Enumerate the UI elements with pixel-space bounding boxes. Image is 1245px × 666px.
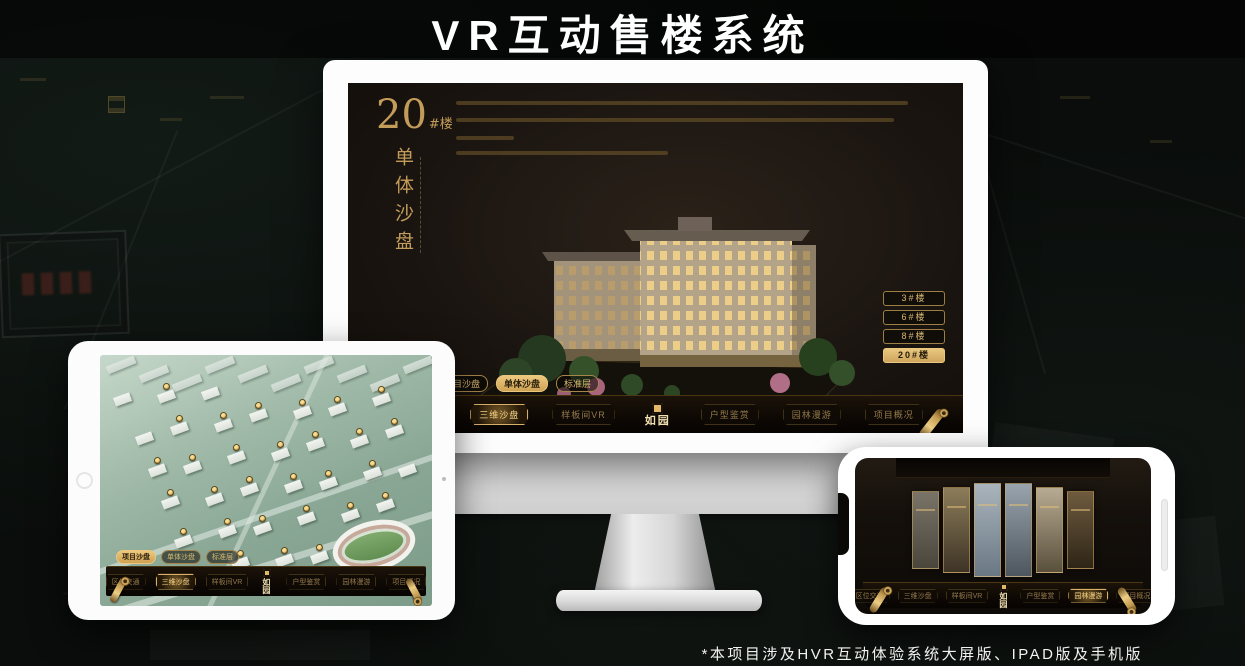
building-badge[interactable] (154, 457, 161, 464)
monitor-stand-base (556, 590, 762, 611)
building-badge[interactable] (281, 547, 288, 554)
map-building (205, 492, 224, 506)
bg-faint-building (150, 630, 370, 660)
bg-gold-dash (1150, 140, 1172, 143)
building-number-suffix: #楼 (429, 117, 453, 132)
building-badge[interactable] (259, 515, 266, 522)
bg-road-line (959, 124, 1245, 237)
map-building (249, 408, 268, 422)
map-building (205, 356, 236, 375)
tablet-screen: 项目沙盘单体沙盘标准层 区位交通三维沙盘样板间VR 如园 户型鉴赏园林漫游项目概… (100, 355, 432, 606)
map-building (376, 498, 395, 512)
map-building (214, 418, 233, 432)
gallery-panel[interactable] (912, 491, 939, 569)
building-badge[interactable] (233, 444, 240, 451)
nav-item[interactable]: 项目概况 (865, 404, 923, 425)
map-building (297, 511, 316, 525)
view-tab[interactable]: 项目沙盘 (116, 550, 156, 564)
page-title: VR互动售楼系统 (0, 2, 1245, 63)
nav-item[interactable]: 样板间VR (206, 574, 249, 590)
building-badge[interactable] (369, 460, 376, 467)
tablet-camera-icon (442, 477, 446, 481)
nav-item[interactable]: 户型鉴赏 (701, 404, 759, 425)
gallery-panel[interactable] (1067, 491, 1094, 569)
brand-seal-icon (263, 569, 271, 577)
bg-plaque-frame (0, 230, 130, 338)
bg-gold-glyph (108, 96, 125, 113)
map-building (148, 463, 167, 477)
building-badge[interactable] (391, 418, 398, 425)
bg-gold-dash (160, 118, 182, 121)
phone-navbar: 区位交通三维沙盘样板间VR 如园 户型鉴赏园林漫游项目概况 (863, 582, 1143, 608)
phone-notch (838, 493, 849, 555)
building-badge[interactable] (167, 489, 174, 496)
intro-text-line (456, 136, 514, 140)
building-number: 20 (376, 92, 427, 138)
nav-item[interactable]: 三维沙盘 (156, 574, 196, 590)
view-tab-group: 项目沙盘单体沙盘标准层 (436, 375, 599, 392)
subtitle-divider (420, 157, 421, 253)
gallery-panel[interactable] (1036, 487, 1063, 573)
floor-button[interactable]: 6#楼 (883, 310, 945, 325)
brand-logo-text: 如园 (645, 416, 671, 427)
gallery-panel[interactable] (974, 483, 1001, 577)
map-building (337, 365, 368, 384)
building-badge[interactable] (334, 396, 341, 403)
nav-item[interactable]: 户型鉴赏 (286, 574, 326, 590)
building-badge[interactable] (382, 492, 389, 499)
nav-item[interactable]: 三维沙盘 (470, 404, 528, 425)
building-badge[interactable] (224, 518, 231, 525)
bg-gold-dash (1060, 96, 1090, 99)
building-badge[interactable] (189, 454, 196, 461)
phone: 区位交通三维沙盘样板间VR 如园 户型鉴赏园林漫游项目概况 (838, 447, 1175, 625)
brand-seal-icon (652, 403, 663, 414)
nav-item[interactable]: 园林漫游 (336, 574, 376, 590)
map-building (385, 424, 404, 438)
brand-logo-text: 如园 (999, 593, 1009, 609)
map-building (271, 374, 302, 393)
map-building (227, 450, 246, 464)
subtitle-vertical: 单体沙盘 (390, 147, 417, 259)
floor-button[interactable]: 8#楼 (883, 329, 945, 344)
map-building (172, 374, 203, 393)
floor-button[interactable]: 3#楼 (883, 291, 945, 306)
building-badge[interactable] (180, 528, 187, 535)
map-building (370, 374, 401, 393)
map-building (341, 508, 360, 522)
view-tab[interactable]: 单体沙盘 (161, 550, 201, 564)
phone-side-pill (1161, 499, 1168, 571)
gallery-panel[interactable] (1005, 483, 1032, 577)
tablet-navbar: 区位交通三维沙盘样板间VR 如园 户型鉴赏园林漫游项目概况 (106, 566, 426, 596)
map-building (350, 434, 369, 448)
map-building (372, 392, 391, 406)
map-building (135, 431, 154, 445)
map-building (328, 402, 347, 416)
map-building (293, 405, 312, 419)
building-badge[interactable] (378, 386, 385, 393)
gallery-panel[interactable] (943, 487, 970, 573)
brand-seal-icon (1000, 583, 1008, 591)
map-building (183, 460, 202, 474)
tablet-view-tab-group: 项目沙盘单体沙盘标准层 (116, 550, 239, 564)
nav-item[interactable]: 样板间VR (946, 589, 989, 603)
intro-text-line (456, 151, 668, 155)
map-building (106, 356, 137, 375)
map-building (139, 365, 170, 384)
brand-logo: 如园 (262, 569, 272, 595)
view-tab[interactable]: 单体沙盘 (496, 375, 548, 392)
building-badge[interactable] (312, 431, 319, 438)
map-building (170, 421, 189, 435)
bg-road-line (0, 72, 356, 271)
nav-item[interactable]: 三维沙盘 (898, 589, 938, 603)
tablet: 项目沙盘单体沙盘标准层 区位交通三维沙盘样板间VR 如园 户型鉴赏园林漫游项目概… (68, 341, 455, 620)
building-badge[interactable] (356, 428, 363, 435)
bg-plaque-text-mark (22, 271, 93, 295)
building-badge[interactable] (220, 412, 227, 419)
phone-screen: 区位交通三维沙盘样板间VR 如园 户型鉴赏园林漫游项目概况 (855, 458, 1151, 614)
gallery-panels (912, 480, 1094, 580)
nav-item[interactable]: 园林漫游 (783, 404, 841, 425)
building-badge[interactable] (246, 476, 253, 483)
map-building (201, 386, 220, 400)
building-badge[interactable] (255, 402, 262, 409)
building-number-title: 20#楼 (376, 95, 453, 135)
nav-item[interactable]: 园林漫游 (1068, 589, 1108, 603)
map-building (284, 479, 303, 493)
nav-right-group: 户型鉴赏园林漫游项目概况 (701, 404, 923, 425)
floor-button[interactable]: 20#楼 (883, 348, 945, 363)
brand-logo: 如园 (999, 583, 1009, 609)
nav-item[interactable]: 户型鉴赏 (1020, 589, 1060, 603)
map-building (240, 482, 259, 496)
view-tab[interactable]: 标准层 (556, 375, 599, 392)
interior-beam (896, 458, 1109, 478)
tablet-home-button[interactable] (76, 472, 93, 489)
map-building (253, 521, 272, 535)
map-building (238, 365, 269, 384)
stage: VR互动售楼系统 20#楼 单体沙盘 (0, 0, 1245, 666)
building-badge[interactable] (303, 505, 310, 512)
map-building (157, 389, 176, 403)
building-badge[interactable] (299, 399, 306, 406)
building-badge[interactable] (347, 502, 354, 509)
nav-item[interactable]: 样板间VR (552, 404, 615, 425)
floor-button-group: 3#楼6#楼8#楼20#楼 (883, 291, 945, 363)
map-building (113, 392, 132, 406)
intro-text-line (456, 118, 894, 122)
building-badge[interactable] (277, 441, 284, 448)
view-tab[interactable]: 标准层 (206, 550, 239, 564)
building-main-wing (624, 217, 816, 367)
building-badge[interactable] (316, 544, 323, 551)
bg-gold-dash (20, 78, 46, 81)
brand-logo: 如园 (645, 403, 671, 427)
building-badge[interactable] (163, 383, 170, 390)
map-building (403, 356, 432, 375)
building-badge[interactable] (290, 473, 297, 480)
map-building (306, 437, 325, 451)
brand-logo-text: 如园 (262, 579, 272, 595)
bg-gold-dash (210, 96, 244, 99)
footnote: *本项目涉及HVR互动体验系统大屏版、IPAD版及手机版 (702, 643, 1143, 664)
monitor-stand-neck (594, 514, 716, 594)
intro-text-line (456, 101, 908, 105)
building-badge[interactable] (325, 470, 332, 477)
building-badge[interactable] (176, 415, 183, 422)
map-building (161, 495, 180, 509)
map-building (174, 534, 193, 548)
building-badge[interactable] (211, 486, 218, 493)
